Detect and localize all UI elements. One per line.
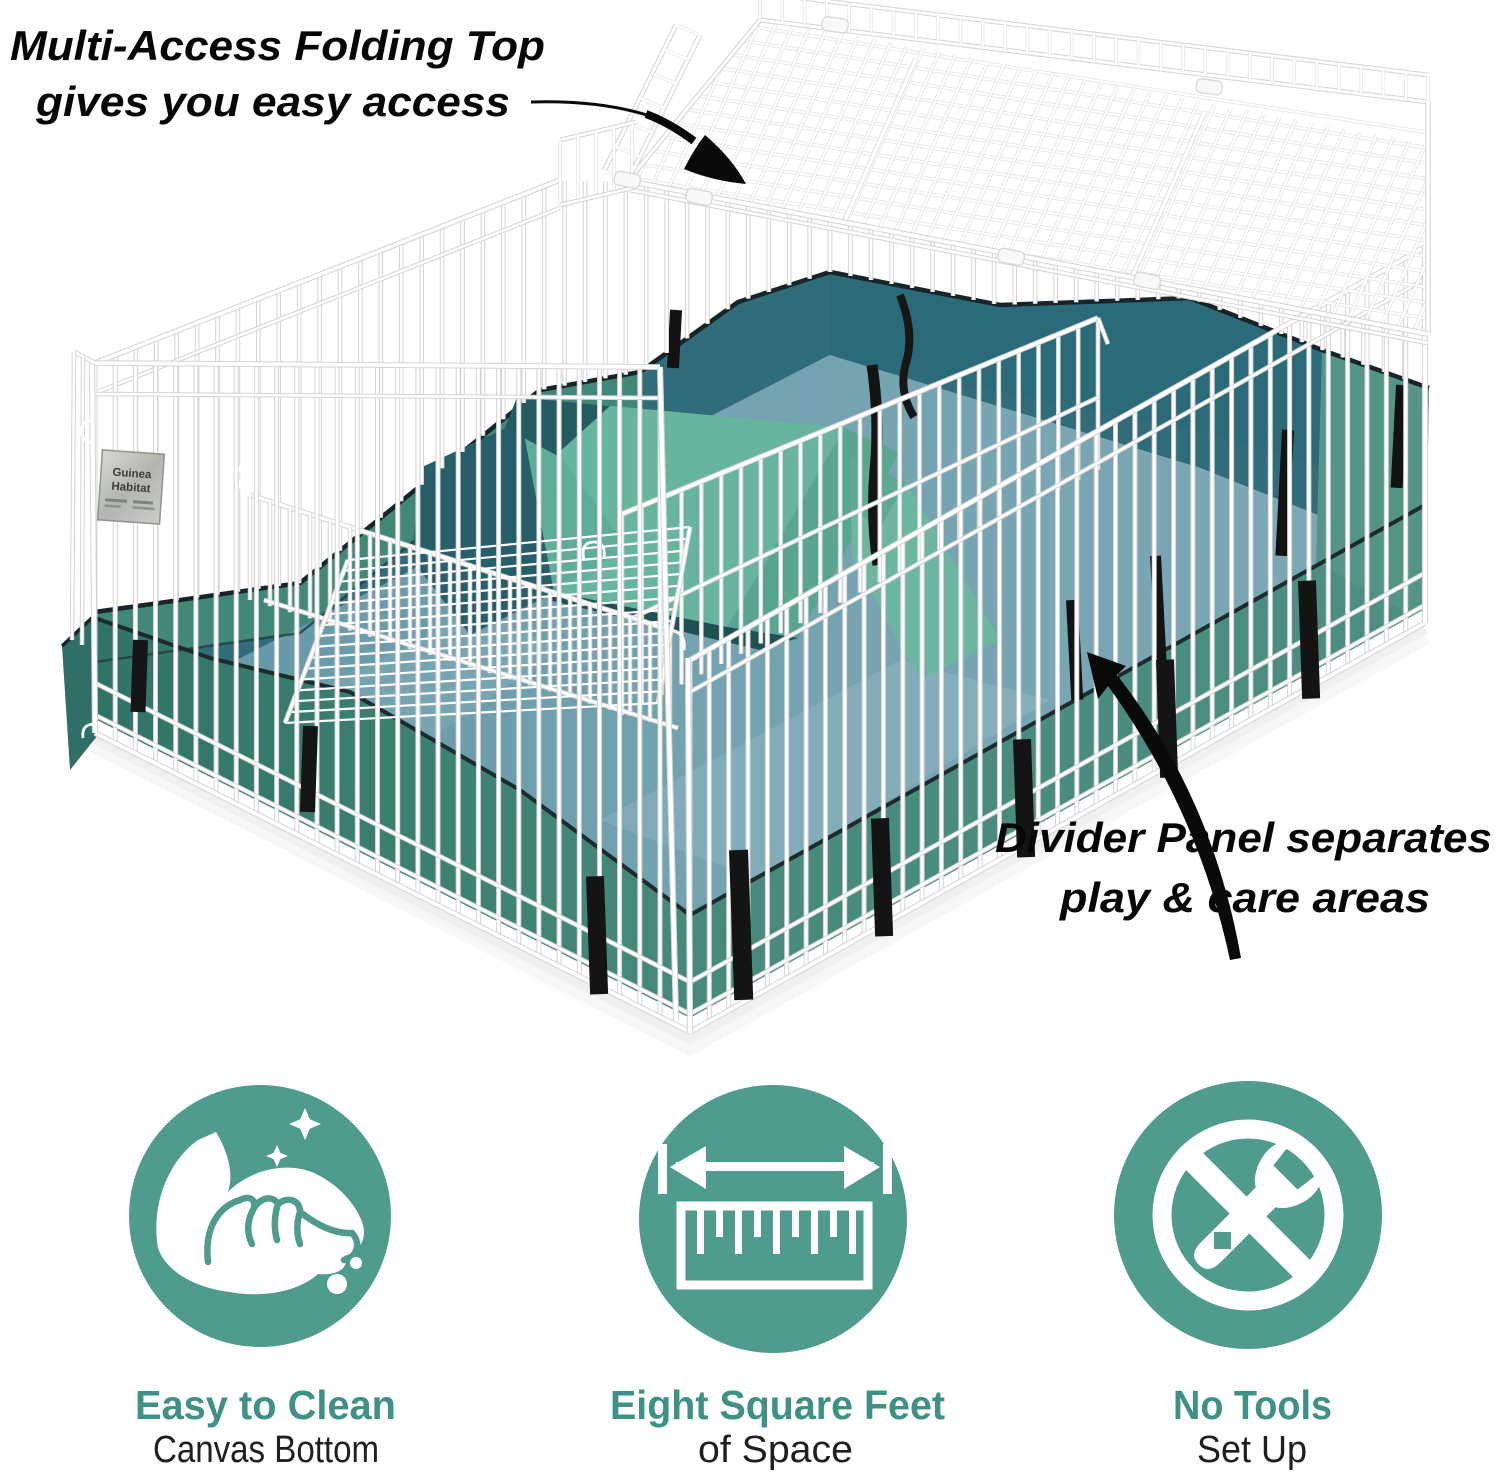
svg-text:Multi-Access Folding Top: Multi-Access Folding Top — [10, 22, 545, 69]
svg-text:gives you easy access: gives you easy access — [35, 78, 510, 125]
svg-text:Easy to Clean: Easy to Clean — [135, 1382, 396, 1428]
svg-text:Set Up: Set Up — [1197, 1429, 1307, 1471]
svg-text:Canvas Bottom: Canvas Bottom — [153, 1429, 379, 1471]
svg-text:play & care areas: play & care areas — [1059, 874, 1430, 921]
svg-text:of Space: of Space — [698, 1429, 853, 1471]
svg-text:Eight Square Feet: Eight Square Feet — [610, 1382, 945, 1428]
svg-text:No Tools: No Tools — [1173, 1382, 1332, 1428]
svg-text:Divider Panel separates: Divider Panel separates — [995, 814, 1492, 861]
